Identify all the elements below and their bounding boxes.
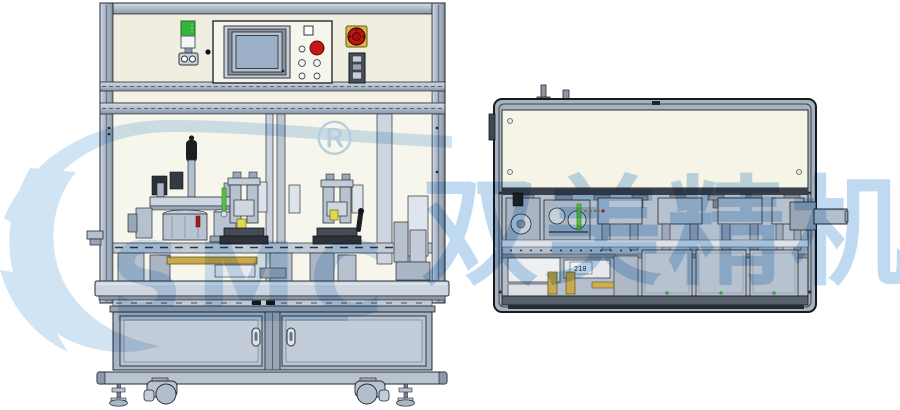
start-button-red (310, 41, 324, 55)
fixture-blocks: 210 (508, 256, 638, 296)
hmi-screen (224, 26, 290, 78)
cabinet-base (110, 306, 435, 370)
mechanism-deck: 210 (499, 188, 812, 301)
bottom-bar (502, 296, 808, 309)
caster-left (144, 378, 177, 404)
bench-top (95, 281, 449, 306)
output-arm (790, 202, 848, 230)
top-view-machine: 210 (489, 85, 848, 312)
panel-screw (205, 49, 210, 54)
gold-rail (167, 257, 257, 264)
nameplate-badge (349, 53, 365, 83)
fixture-plate-label: 210 (574, 265, 587, 273)
machine-diagram-canvas: 210 (0, 0, 900, 410)
pallet-panels (642, 250, 798, 296)
hmi-panel (205, 21, 332, 83)
door-handle-right (287, 328, 295, 346)
front-view-machine (87, 3, 449, 406)
leveling-foot-left (110, 384, 128, 406)
side-tab (489, 114, 495, 140)
leveling-foot-right (397, 384, 415, 406)
base-and-feet (97, 372, 447, 406)
door-handle-left (252, 328, 260, 346)
control-panel (113, 14, 432, 83)
machines-drawing: 210 (0, 0, 900, 410)
signal-tower-light (179, 21, 198, 65)
estop-button (346, 26, 367, 47)
top-cover-panel (502, 110, 808, 188)
